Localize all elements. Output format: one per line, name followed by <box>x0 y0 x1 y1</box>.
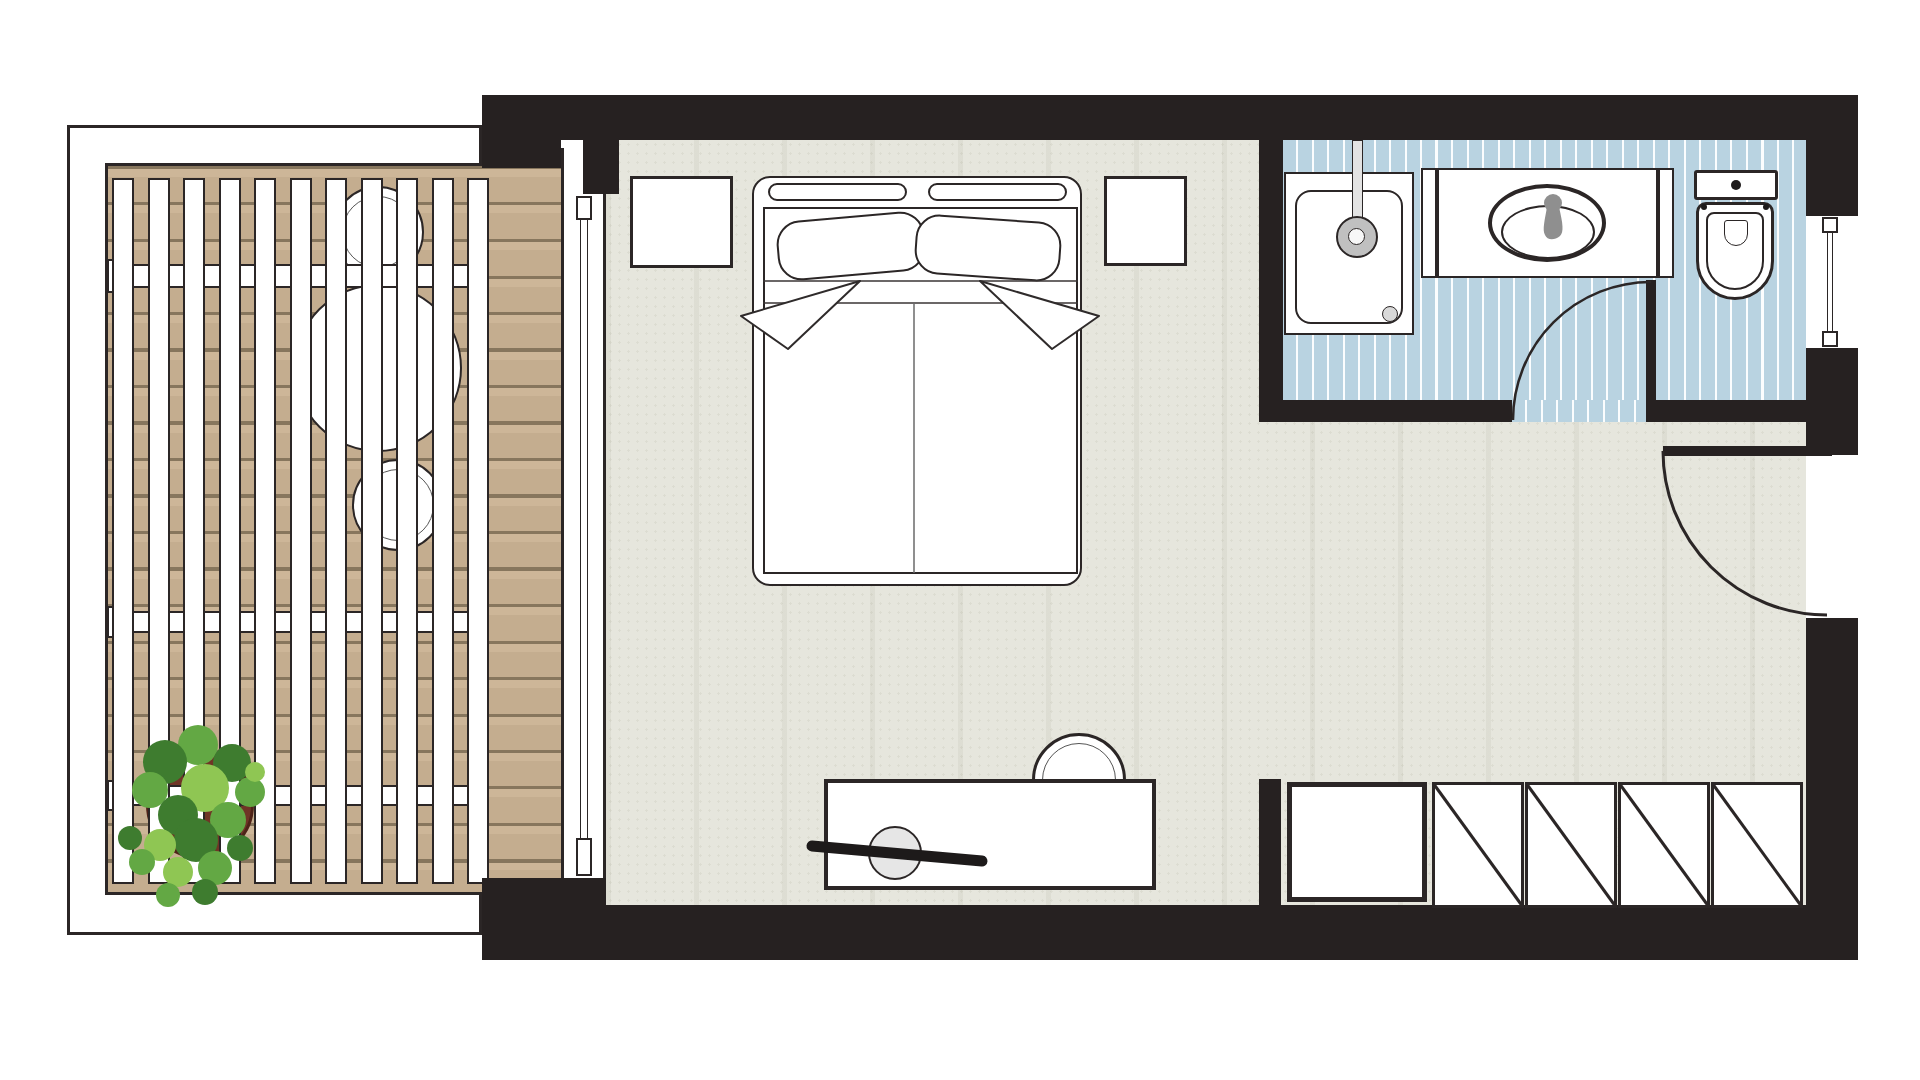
bathroom-door-leaf <box>1646 280 1656 422</box>
plant-foliage <box>227 835 253 861</box>
plant-foliage <box>118 826 142 850</box>
toilet-hinge-left <box>1701 204 1707 210</box>
nightstand-right <box>1104 176 1187 266</box>
pergola-slat <box>396 178 418 884</box>
sink-basin-inner <box>1501 205 1595 259</box>
bathroom-door-threshold <box>1512 400 1656 422</box>
wall-bathroom-bottom-left <box>1283 400 1512 422</box>
shower-drain <box>1382 306 1398 322</box>
wall-top <box>482 95 1858 140</box>
wardrobe-shelf-unit <box>1287 782 1427 902</box>
nightstand-left <box>630 176 733 268</box>
wardrobe-door <box>1525 782 1617 908</box>
entry-door-leaf <box>1663 446 1832 456</box>
pillow-left <box>775 210 928 283</box>
vanity-wall-stub-left <box>1421 168 1437 278</box>
wardrobe-door <box>1711 782 1803 908</box>
wardrobe-door <box>1618 782 1710 908</box>
terrace-door-glass <box>580 218 588 840</box>
plant-foliage <box>245 762 265 782</box>
terrace-door-stop-top <box>576 196 592 220</box>
pergola-slat <box>325 178 347 884</box>
toilet-hinge-right <box>1763 204 1769 210</box>
floor-plan <box>0 0 1920 1080</box>
window-stop-top <box>1822 217 1838 233</box>
toilet-bowl-detail <box>1724 220 1748 246</box>
wall-bottom <box>606 905 1858 960</box>
pergola-slat <box>290 178 312 884</box>
vanity-wall-stub-right <box>1658 168 1674 278</box>
toilet-flush-button <box>1731 180 1741 190</box>
pillow-right <box>913 213 1063 283</box>
terrace-door-stop-bottom <box>576 838 592 876</box>
plant-foliage <box>192 879 218 905</box>
shower-tray-inner <box>1295 190 1403 324</box>
window-glass <box>1827 233 1833 331</box>
headboard-cushion-right <box>928 183 1067 201</box>
wardrobe-door <box>1432 782 1524 908</box>
wall-bottom-terrace-corner <box>482 878 606 960</box>
wall-bathroom-left <box>1259 95 1283 422</box>
shower-head-center <box>1348 228 1365 245</box>
wall-bathroom-bottom-right <box>1656 400 1806 422</box>
pergola-slat <box>112 178 134 884</box>
plant-foliage <box>156 883 180 907</box>
wall-terrace-pier <box>482 95 561 168</box>
pergola-slat <box>467 178 489 884</box>
headboard-cushion-left <box>768 183 907 201</box>
wall-right-mid <box>1806 348 1858 455</box>
wall-entry-stub <box>1259 779 1281 905</box>
desk-stool <box>868 826 922 880</box>
wall-door-pocket <box>583 140 619 194</box>
pergola-slat <box>361 178 383 884</box>
wall-right-top <box>1806 95 1858 216</box>
pergola-slat <box>432 178 454 884</box>
plant-foliage <box>129 849 155 875</box>
window-stop-bottom <box>1822 331 1838 347</box>
plant-foliage <box>235 777 265 807</box>
